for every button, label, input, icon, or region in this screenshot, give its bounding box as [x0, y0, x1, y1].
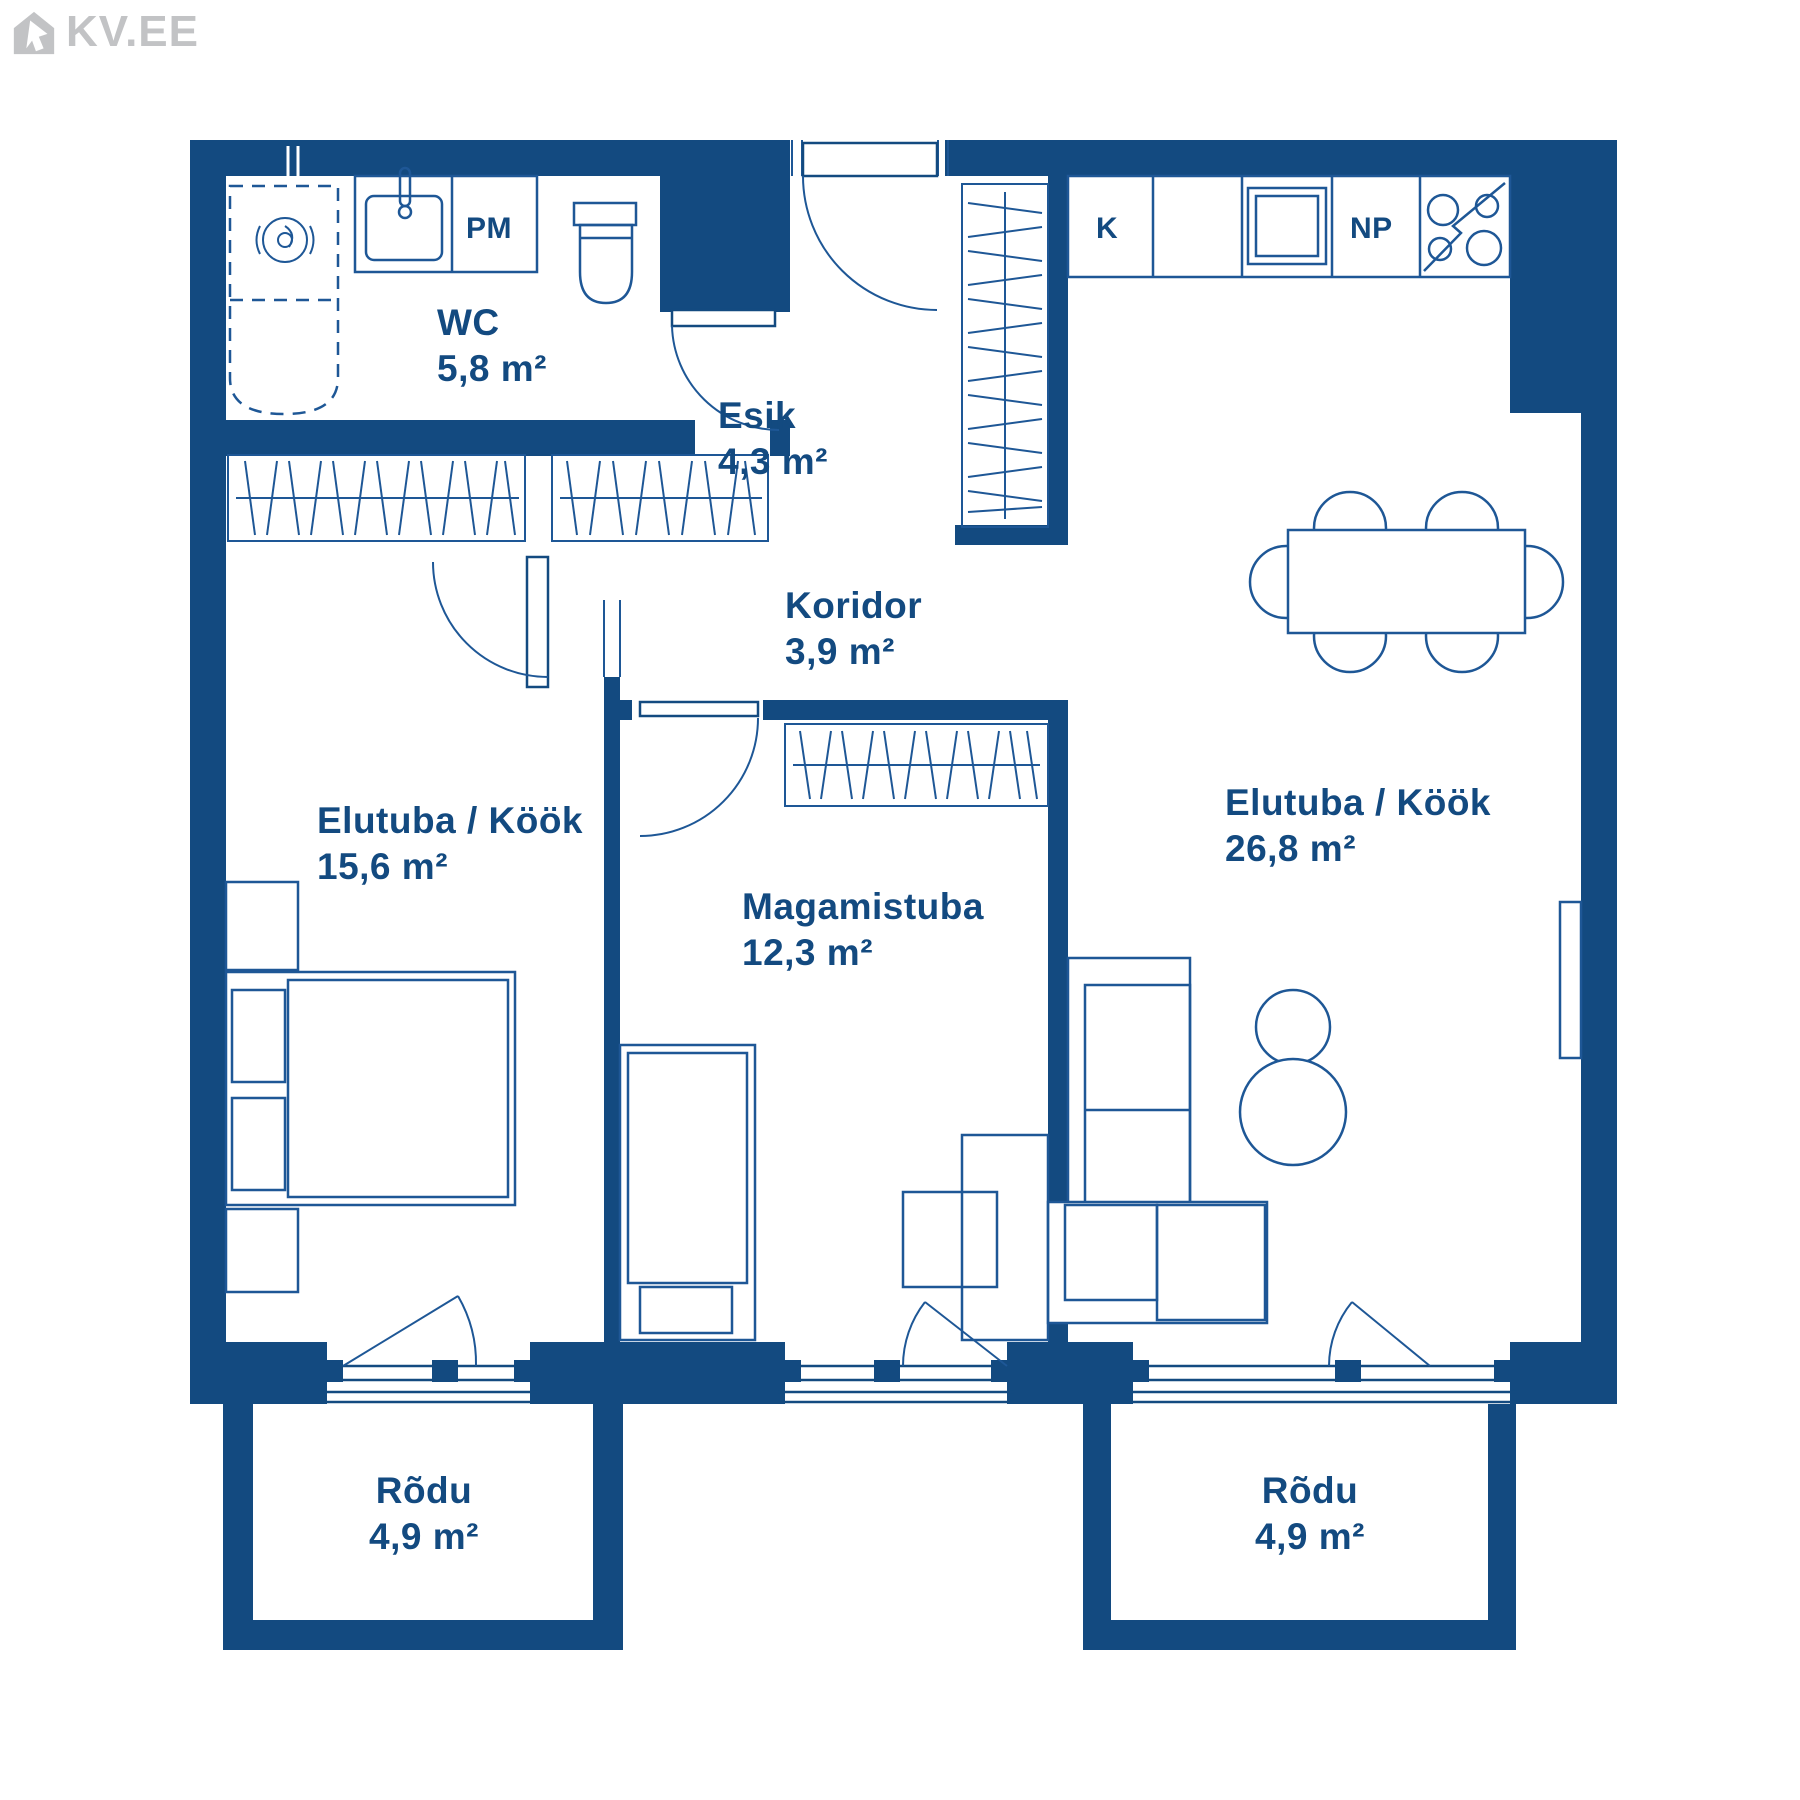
front-door [792, 140, 948, 310]
wardrobe-esik [962, 184, 1048, 527]
floor-plan: KV.EE WC 5,8 m² Esik 4,3 m² Koridor 3,9 … [0, 0, 1800, 1800]
label-fridge: K [1096, 212, 1118, 246]
desk-and-chair-symbol [903, 1135, 1048, 1340]
coffee-tables-symbol [1240, 990, 1346, 1165]
room-name: Koridor [785, 583, 922, 629]
room-area: 4,9 m² [1255, 1514, 1365, 1560]
room-area: 12,3 m² [742, 930, 984, 976]
room-area: 26,8 m² [1225, 826, 1491, 872]
room-area: 4,9 m² [369, 1514, 479, 1560]
sofa-symbol [1048, 958, 1267, 1323]
kitchen-counter [1068, 176, 1510, 277]
room-label-elutuba-parem: Elutuba / Köök 26,8 m² [1225, 780, 1491, 872]
bedroom-window [778, 1302, 1014, 1402]
room-label-esik: Esik 4,3 m² [718, 393, 828, 485]
kvee-logo: KV.EE [8, 8, 199, 56]
bathtub-symbol [230, 146, 338, 414]
room-label-wc: WC 5,8 m² [437, 300, 547, 392]
room-name: Elutuba / Köök [317, 798, 583, 844]
stove-symbol [1424, 183, 1505, 271]
room-name: Rõdu [369, 1468, 479, 1514]
dining-set-symbol [1250, 492, 1563, 672]
label-washing-machine: PM [466, 212, 512, 246]
room-name: Magamistuba [742, 884, 984, 930]
kvee-house-icon [8, 8, 60, 56]
bedroom-door [640, 702, 758, 836]
room-name: WC [437, 300, 547, 346]
double-bed-symbol [226, 882, 515, 1292]
room-area: 4,3 m² [718, 439, 828, 485]
room-label-koridor: Koridor 3,9 m² [785, 583, 922, 675]
wardrobe-bedroom [785, 724, 1048, 806]
single-bed-symbol [620, 1045, 755, 1340]
room-name: Rõdu [1255, 1468, 1365, 1514]
left-room-window [320, 1296, 537, 1402]
room-label-elutuba-vasak: Elutuba / Köök 15,6 m² [317, 798, 583, 890]
label-dishwasher: NP [1350, 212, 1393, 246]
room-area: 3,9 m² [785, 629, 922, 675]
room-label-rodu-vasak: Rõdu 4,9 m² [369, 1468, 479, 1560]
left-room-door [433, 557, 620, 687]
room-area: 15,6 m² [317, 844, 583, 890]
tv-bench-symbol [1560, 902, 1581, 1058]
oven-symbol [1248, 188, 1326, 264]
room-name: Esik [718, 393, 828, 439]
room-label-magamistuba: Magamistuba 12,3 m² [742, 884, 984, 976]
wardrobe-left-room [228, 455, 525, 541]
room-name: Elutuba / Köök [1225, 780, 1491, 826]
room-label-rodu-parem: Rõdu 4,9 m² [1255, 1468, 1365, 1560]
kvee-logo-text: KV.EE [66, 10, 199, 54]
room-area: 5,8 m² [437, 346, 547, 392]
toilet-symbol [574, 203, 636, 303]
